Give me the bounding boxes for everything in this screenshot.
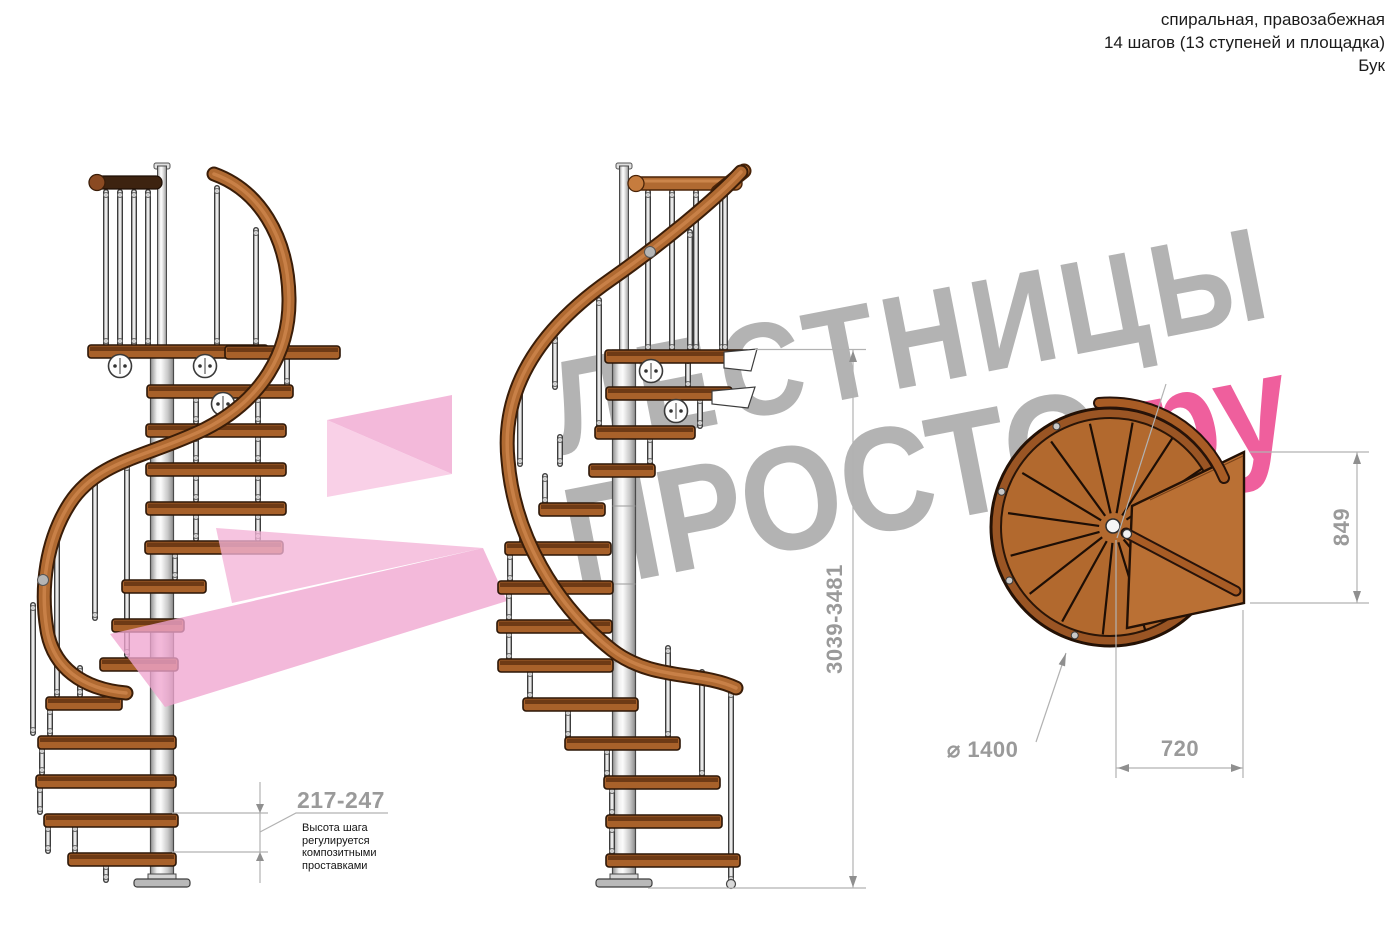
leader-center-pole — [1117, 384, 1166, 538]
plate-bolt — [669, 409, 673, 413]
plate-bolt — [113, 364, 117, 368]
tread-top-edge — [70, 855, 174, 860]
baluster-collar — [517, 458, 522, 463]
baluster-collar — [255, 416, 260, 421]
baluster-collar — [687, 232, 692, 237]
baluster-collar — [604, 770, 609, 775]
arrowhead — [256, 804, 264, 813]
left-top-rail-cap — [89, 175, 105, 191]
tread-top-edge — [148, 465, 284, 470]
baluster-collar — [193, 533, 198, 538]
tread-top-edge — [608, 856, 738, 861]
baluster-collar — [687, 344, 692, 349]
floor-break-symbol-1 — [724, 349, 757, 371]
plate-bolt — [123, 364, 127, 368]
baluster-collar — [103, 874, 108, 879]
tread-top-edge — [124, 582, 204, 587]
diameter-dimension: ⌀ 1400 — [947, 737, 1018, 762]
tread-top-edge — [40, 738, 174, 743]
plate-bolt — [198, 364, 202, 368]
title-line-type: спиральная, правозабежная — [1104, 8, 1385, 31]
left-handrail-joint-collar — [38, 575, 49, 586]
tread-top-edge — [567, 739, 678, 744]
staircase-side-view-middle — [497, 163, 757, 889]
baluster-collar — [542, 497, 547, 502]
plate-bolt — [654, 369, 658, 373]
elevation-views-layer: 3039-3481 217-247 849 720 ⌀ 1400 — [0, 0, 1400, 941]
platform-width-dimension: 720 — [1161, 736, 1199, 761]
pole-base-flange — [134, 879, 190, 887]
baluster-collar — [645, 344, 650, 349]
pole-base-flange — [596, 879, 652, 887]
platform-depth-dimension: 849 — [1329, 508, 1354, 546]
tread-top-edge — [606, 778, 718, 783]
title-line-steps: 14 шагов (13 ступеней и площадка) — [1104, 31, 1385, 54]
baluster-collar — [647, 458, 652, 463]
baluster-collar — [145, 192, 150, 197]
arrowhead — [1353, 453, 1361, 464]
tread-top-edge — [46, 816, 176, 821]
entry-post-foot — [727, 880, 736, 889]
floor-break-symbol-2 — [712, 387, 755, 408]
technical-drawing-page: ЛЕСТНИЦЫ ПРОСТО.ру — [0, 0, 1400, 941]
baluster-collar — [193, 494, 198, 499]
baluster-collar — [722, 344, 727, 349]
note-line: регулируется — [302, 835, 376, 848]
tread-top-edge — [149, 387, 291, 392]
tread-top-edge — [541, 505, 603, 510]
tread-top-edge — [608, 817, 720, 822]
baluster-collar — [527, 692, 532, 697]
tread-top-edge — [148, 504, 284, 509]
baluster-collar — [255, 494, 260, 499]
arrowhead — [1118, 764, 1129, 772]
baluster-collar — [609, 848, 614, 853]
baluster-collar — [30, 605, 35, 610]
center-pole-upper — [158, 166, 167, 357]
baluster-collar — [699, 770, 704, 775]
baluster-collar — [45, 845, 50, 850]
baluster-collar — [697, 420, 702, 425]
baluster-collar — [506, 614, 511, 619]
tread-top-edge — [591, 466, 653, 471]
baluster-collar — [596, 300, 601, 305]
title-block: спиральная, правозабежная 14 шагов (13 с… — [1104, 8, 1385, 77]
note-line: композитными — [302, 847, 376, 860]
baluster-collar — [54, 689, 59, 694]
note-line: Высота шага — [302, 822, 376, 835]
baluster-collar — [214, 338, 219, 343]
baluster-collar — [596, 420, 601, 425]
tread-top-edge — [38, 777, 174, 782]
plate-bolt — [644, 369, 648, 373]
baluster-collar — [506, 653, 511, 658]
baluster-collar — [693, 344, 698, 349]
baluster-collar — [552, 381, 557, 386]
arrowhead — [1353, 591, 1361, 602]
baluster-collar — [253, 230, 258, 235]
baluster-collar — [557, 437, 562, 442]
middle-top-rail-cap — [628, 176, 644, 192]
baluster-collar — [665, 731, 670, 736]
tread-top-edge — [597, 428, 693, 433]
baluster-collar — [507, 575, 512, 580]
baluster-collar — [72, 845, 77, 850]
baluster-collar — [669, 192, 674, 197]
baluster-collar — [117, 338, 122, 343]
arrowhead — [849, 876, 857, 888]
baluster-collar — [669, 344, 674, 349]
baluster-collar — [117, 192, 122, 197]
tread-top-edge — [48, 699, 120, 704]
baluster-collar — [103, 192, 108, 197]
total-height-dimension: 3039-3481 — [822, 564, 847, 674]
plate-bolt — [679, 409, 683, 413]
step-height-note: Высота шага регулируется композитными пр… — [302, 822, 376, 872]
baluster-collar — [193, 416, 198, 421]
baluster-collar — [145, 338, 150, 343]
baluster-collar — [92, 612, 97, 617]
baluster-collar — [685, 381, 690, 386]
tread-top-edge — [500, 661, 611, 666]
baluster-collar — [103, 338, 108, 343]
baluster-collar — [37, 806, 42, 811]
arrowhead — [849, 351, 857, 363]
baluster-collar — [39, 767, 44, 772]
baluster-collar — [131, 338, 136, 343]
baluster-collar — [253, 338, 258, 343]
plate-bolt — [216, 402, 220, 406]
note-line: проставками — [302, 860, 376, 873]
baluster-collar — [47, 728, 52, 733]
baluster-collar — [284, 378, 289, 383]
baluster-collar — [609, 809, 614, 814]
baluster-collar — [542, 476, 547, 481]
baluster-collar — [193, 455, 198, 460]
baluster-collar — [665, 648, 670, 653]
leader-diameter — [1036, 653, 1066, 742]
arrowhead — [256, 852, 264, 861]
center-pole-upper — [620, 166, 629, 350]
baluster-collar — [214, 188, 219, 193]
baluster-collar — [172, 572, 177, 577]
baluster-collar — [131, 192, 136, 197]
plate-bolt — [208, 364, 212, 368]
arrowhead — [1059, 652, 1070, 666]
step-height-dimension: 217-247 — [297, 787, 385, 813]
baluster-collar — [77, 689, 82, 694]
middle-handrail-joint-collar — [645, 247, 656, 258]
baluster-collar — [30, 727, 35, 732]
staircase-side-view-left — [30, 163, 340, 887]
baluster-collar — [693, 192, 698, 197]
tread-top-edge — [525, 700, 636, 705]
baluster-collar — [557, 458, 562, 463]
title-line-material: Бук — [1104, 54, 1385, 77]
baluster-collar — [565, 731, 570, 736]
arrowhead — [1231, 764, 1242, 772]
baluster-collar — [255, 455, 260, 460]
baluster-collar — [645, 192, 650, 197]
